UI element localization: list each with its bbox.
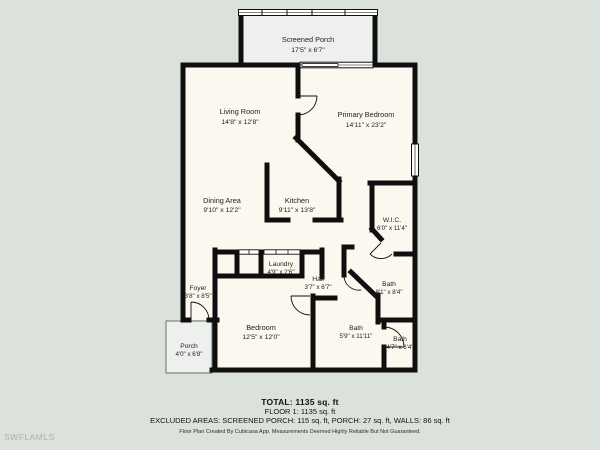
room-name: Hall [312,276,324,283]
room-dims: 9'11" x 13'8" [279,207,316,214]
room-label-laundry: Laundry 4'9" x 2'6" [267,261,294,276]
total-area-text: TOTAL: 1135 sq. ft [0,397,600,407]
room-name: Dining Area [203,196,242,205]
room-dims: 5'9" x 11'11" [339,333,372,340]
room-name: Bath [382,281,396,288]
bedroom-window [412,144,419,176]
room-name: Screened Porch [282,35,334,44]
room-dims: 12'5" x 12'0" [242,334,280,341]
room-dims: 9'10" x 12'2" [203,207,241,214]
floor-plan-page: Screened Porch 17'5" x 6'7" Living Room … [0,0,600,450]
laundry-bifold-doors [239,250,300,254]
floor-area-text: FLOOR 1: 1135 sq. ft [0,407,600,416]
room-name: Laundry [269,261,294,268]
room-name: Foyer [189,285,207,292]
room-dims: 14'8" x 12'8" [221,119,259,126]
room-name: Kitchen [285,196,309,205]
room-dims: 4'7" x 6'4" [386,344,413,351]
room-name: Bath [349,325,363,332]
room-name: W.I.C. [383,217,401,224]
room-dims: 4'0" x 6'8" [175,351,202,358]
floor-plan-drawing: Screened Porch 17'5" x 6'7" Living Room … [0,0,600,450]
disclaimer-text: Floor Plan Created By Cubicasa App. Meas… [0,429,600,435]
room-dims: 3'8" x 8'5" [184,293,211,300]
room-name: Porch [180,343,198,350]
porch-window-band [239,10,378,16]
room-name: Living Room [220,107,261,116]
room-name: Bedroom [246,323,276,332]
room-dims: 4'9" x 2'6" [267,269,294,276]
room-dims: 14'11" x 23'2" [346,122,387,129]
room-dims: 17'5" x 6'7" [291,47,325,54]
room-dims: 3'7" x 6'7" [304,284,331,291]
room-dims: 8'1" x 8'4" [375,289,402,296]
room-name: Primary Bedroom [338,110,395,119]
excluded-areas-text: EXCLUDED AREAS: SCREENED PORCH: 115 sq. … [0,416,600,425]
room-name: Bath [393,336,407,343]
watermark: SWFLAMLS [4,432,55,442]
porch-slider-door [300,62,373,68]
room-dims: 6'0" x 11'4" [377,225,407,232]
